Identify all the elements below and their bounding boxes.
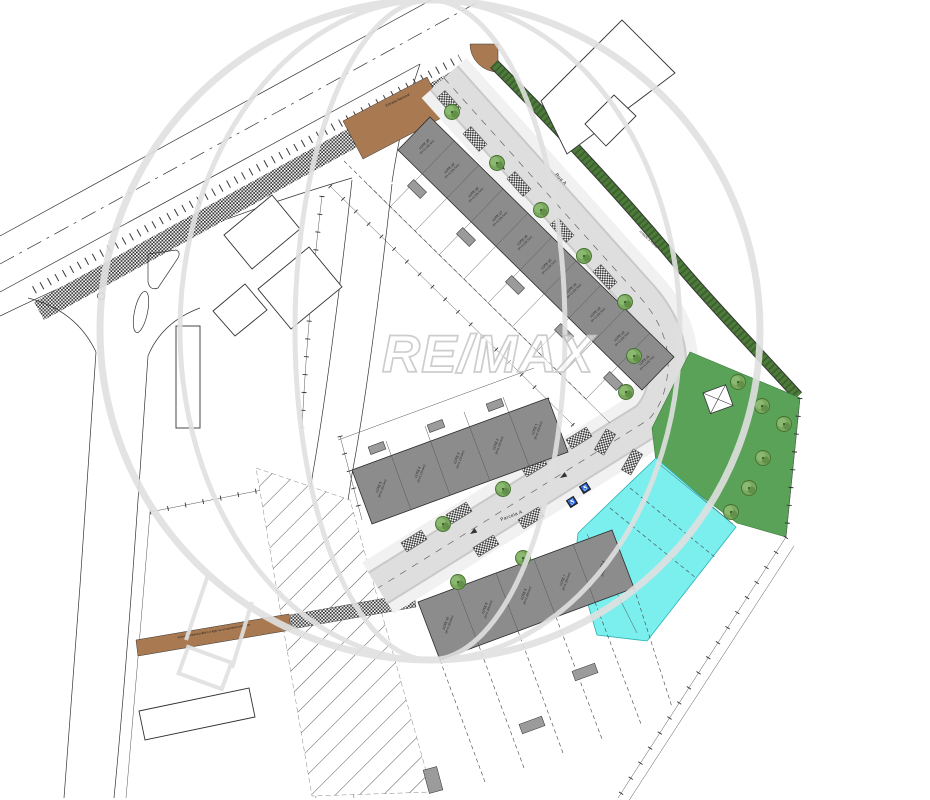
tree-icon bbox=[577, 249, 592, 264]
tree-icon bbox=[490, 156, 505, 171]
tree-icon bbox=[436, 517, 451, 532]
embankment-hatch bbox=[256, 468, 432, 796]
tree-icon bbox=[731, 375, 746, 390]
tree-icon bbox=[755, 399, 770, 414]
annex bbox=[486, 399, 504, 412]
annex bbox=[572, 663, 598, 681]
tree-icon bbox=[451, 575, 466, 590]
tree-icon bbox=[756, 451, 771, 466]
tree-icon bbox=[777, 417, 792, 432]
annex bbox=[427, 420, 445, 433]
annex bbox=[519, 716, 545, 734]
tree-icon bbox=[742, 481, 757, 496]
annex bbox=[368, 442, 386, 455]
tree-icon bbox=[627, 349, 642, 364]
annex bbox=[407, 179, 426, 198]
tree-icon bbox=[618, 295, 633, 310]
tree-icon bbox=[724, 505, 739, 520]
balloon-basket bbox=[179, 647, 232, 689]
annex bbox=[456, 227, 475, 246]
tree-icon bbox=[534, 203, 549, 218]
tree-icon bbox=[619, 385, 634, 400]
watermark-text: RE/MAX bbox=[382, 325, 596, 384]
tree-icon bbox=[445, 105, 460, 120]
annex bbox=[505, 275, 524, 294]
tree-icon bbox=[496, 482, 511, 497]
site-plan: Estrada Nacional acesso pedonal público … bbox=[0, 0, 930, 800]
